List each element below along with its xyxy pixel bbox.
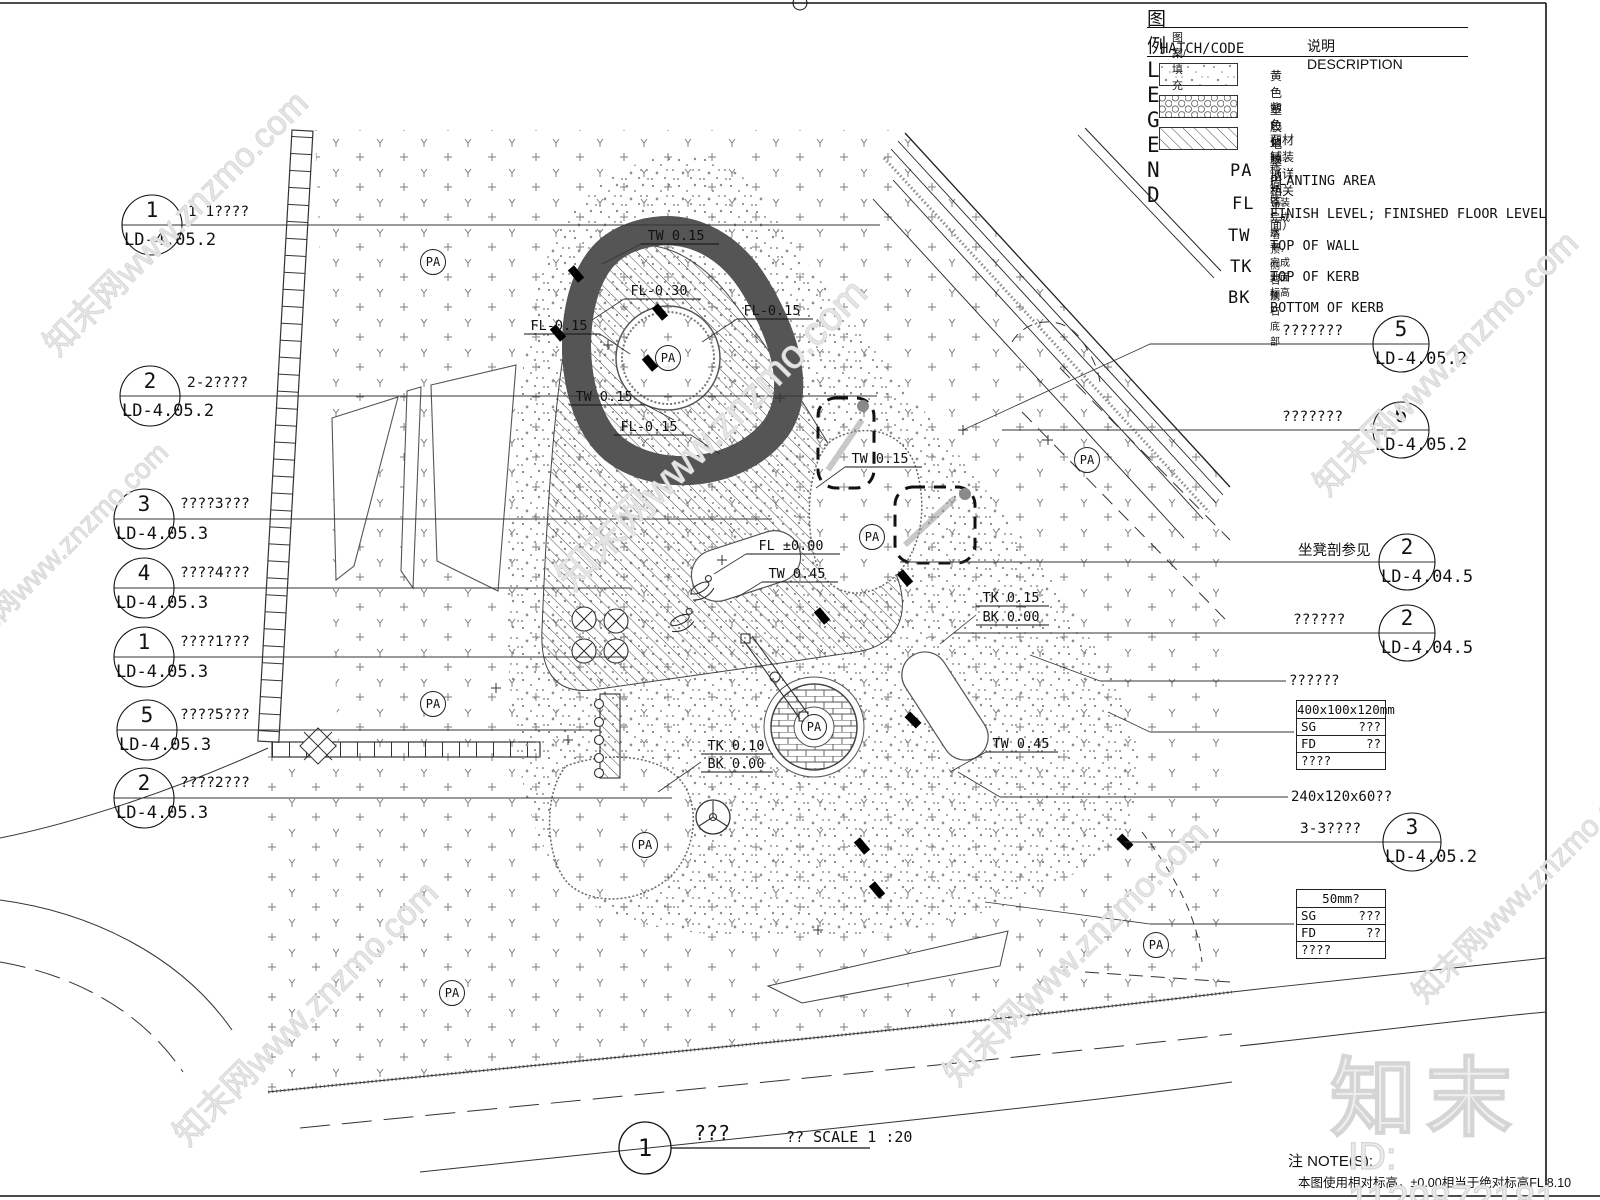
callout-number: 2 xyxy=(1401,535,1414,559)
callout-label: ?????? xyxy=(1293,612,1345,628)
pa-label: PA xyxy=(426,697,441,711)
legend-col-desc: 说明 DESCRIPTION xyxy=(1307,36,1403,72)
callout-number: 6 xyxy=(1395,403,1408,427)
callout-label: ????4??? xyxy=(180,565,250,581)
legend-code-tw: TW xyxy=(1228,226,1250,246)
callout-label: ????2??? xyxy=(180,775,250,791)
callout-sheet-ref: LD-4.04.5 xyxy=(1381,567,1473,587)
spinner xyxy=(696,800,730,834)
pa-label: PA xyxy=(807,720,822,734)
callout-sheet-ref: LD-4.05.3 xyxy=(116,662,208,682)
pa-label: PA xyxy=(1080,453,1095,467)
spec-table-row: FD?? xyxy=(1297,736,1385,753)
callout-sheet-ref: LD-4.05.2 xyxy=(1375,349,1467,369)
callout-label: ??????? xyxy=(1282,409,1343,425)
title-number: 1 xyxy=(638,1134,652,1162)
legend-code-fl: FL xyxy=(1232,194,1254,214)
legend-code-pa-en: PLANTING AREA xyxy=(1270,173,1376,189)
callout-number: 3 xyxy=(138,492,151,516)
level-label: BK 0.00 xyxy=(983,609,1040,625)
callout-number: 5 xyxy=(1395,317,1408,341)
level-label: TK 0.10 xyxy=(708,738,765,754)
level-label: TK 0.15 xyxy=(983,590,1040,606)
legend-swatch-hex xyxy=(1159,95,1238,118)
callout-label: 3-3???? xyxy=(1300,821,1361,837)
callout-number: 2 xyxy=(138,771,151,795)
level-label: TW 0.15 xyxy=(852,451,909,467)
leader-label: ?????? xyxy=(1289,673,1340,689)
callout-number: 2 xyxy=(1401,606,1414,630)
callout-sheet-ref: LD-4.05.2 xyxy=(122,401,214,421)
legend-code-tw-en: TOP OF WALL xyxy=(1270,238,1359,254)
callout-sheet-ref: LD-4.05.2 xyxy=(1385,847,1477,867)
callout-number: 1 xyxy=(138,630,151,654)
legend-code-pa: PA xyxy=(1230,161,1252,181)
level-label: TW 0.15 xyxy=(576,389,633,405)
spec-table-footer: ???? xyxy=(1297,753,1385,769)
spec-table-footer: ???? xyxy=(1297,942,1385,958)
level-label: FL-0.15 xyxy=(621,419,678,435)
legend-col-hatch-en: HATCH/CODE xyxy=(1160,41,1244,57)
spec-table-row: SG??? xyxy=(1297,908,1385,925)
callout-sheet-ref: LD-4.04.5 xyxy=(1381,638,1473,658)
callout-sheet-ref: LD-4.05.2 xyxy=(1375,435,1467,455)
detail-callout: 5LD-4.05.2??????? xyxy=(1150,316,1467,372)
callout-number: 5 xyxy=(141,703,154,727)
title-scale: ?? SCALE 1 :20 xyxy=(786,1128,912,1146)
callout-number: 4 xyxy=(138,561,151,585)
level-label: BK 0.00 xyxy=(708,756,765,772)
pa-label: PA xyxy=(638,838,653,852)
level-label: FL-0.15 xyxy=(744,303,801,319)
legend-title-en: L E G E N D xyxy=(1147,58,1160,207)
callout-label: ????3??? xyxy=(180,496,250,512)
callout-number: 2 xyxy=(144,369,157,393)
level-label: FL-0.15 xyxy=(531,318,588,334)
legend-code-tk: TK xyxy=(1230,257,1252,277)
callout-label: ????1??? xyxy=(180,634,250,650)
callout-label: ??????? xyxy=(1282,323,1343,339)
legend-code-bk-zh: 侧石底部 xyxy=(1270,288,1280,348)
pa-label: PA xyxy=(865,530,880,544)
legend-swatch-diag xyxy=(1159,127,1238,150)
pa-label: PA xyxy=(661,351,676,365)
title-name: ??? xyxy=(694,1121,730,1145)
spec-table-row: FD?? xyxy=(1297,925,1385,942)
callout-label: 2-2???? xyxy=(187,375,248,391)
callout-sheet-ref: LD-4.05.3 xyxy=(116,593,208,613)
legend-swatch-dots xyxy=(1159,63,1238,86)
spec-table: 50mm?SG???FD?????? xyxy=(1296,889,1386,959)
callout-number: 3 xyxy=(1406,815,1419,839)
frame-notch xyxy=(793,0,807,10)
level-label: TW 0.45 xyxy=(993,736,1050,752)
level-label: TW 0.45 xyxy=(769,566,826,582)
legend-code-fl-en: FINISH LEVEL; FINISHED FLOOR LEVEL xyxy=(1270,206,1546,222)
callout-label: ????5??? xyxy=(180,707,250,723)
level-label: FL ±0.00 xyxy=(758,538,823,554)
legend-code-tk-en: TOP OF KERB xyxy=(1270,269,1359,285)
callout-number: 1 xyxy=(146,198,159,222)
level-label: FL-0.30 xyxy=(631,283,688,299)
spec-table: 400x100x120mmSG???FD?????? xyxy=(1296,700,1386,770)
leader-label: 240x120x60?? xyxy=(1291,789,1392,805)
pa-label: PA xyxy=(426,255,441,269)
callout-sheet-ref: LD-4.05.3 xyxy=(116,524,208,544)
pa-label: PA xyxy=(445,986,460,1000)
pa-label: PA xyxy=(1149,938,1164,952)
spec-table-row: SG??? xyxy=(1297,719,1385,736)
callout-label: 坐凳剖参见 xyxy=(1298,542,1371,559)
spec-table-header: 400x100x120mm xyxy=(1297,701,1385,719)
spec-table-header: 50mm? xyxy=(1297,890,1385,908)
callout-sheet-ref: LD-4.05.3 xyxy=(119,735,211,755)
legend-code-bk: BK xyxy=(1228,288,1250,308)
legend-code-bk-en: BOTTOM OF KERB xyxy=(1270,300,1384,316)
drawing-sheet: TW 0.15FL-0.30FL-0.15FL-0.15TW 0.15FL-0.… xyxy=(0,0,1600,1200)
callout-label: 1-1???? xyxy=(188,204,249,220)
callout-sheet-ref: LD-4.05.3 xyxy=(116,803,208,823)
level-label: TW 0.15 xyxy=(648,228,705,244)
callout-sheet-ref: LD-4.05.2 xyxy=(124,230,216,250)
